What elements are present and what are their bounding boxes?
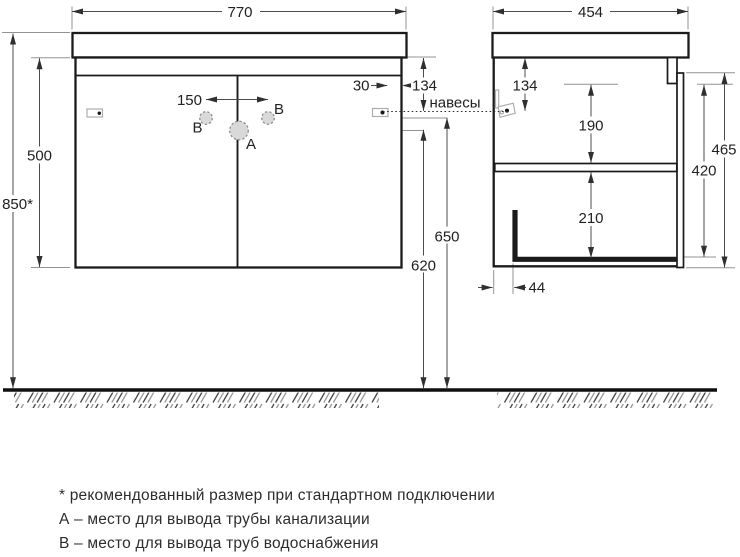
technical-drawing-svg: 770 454 850* 500 150 30 xyxy=(0,0,740,557)
dim-label-30: 30 xyxy=(353,78,370,95)
dim-label-500: 500 xyxy=(27,148,52,165)
dim-back-clearance-44: 44 xyxy=(478,280,545,297)
point-a-label: А xyxy=(246,136,256,153)
dim-label-770: 770 xyxy=(227,4,252,21)
dim-depth-454: 454 xyxy=(493,3,688,21)
side-top-rail xyxy=(668,58,678,84)
wall-hanger-left-icon xyxy=(87,109,103,117)
wall-hanger-right-icon xyxy=(373,109,389,117)
dim-lower-section-210: 210 xyxy=(575,172,607,258)
dim-total-height-850: 850* xyxy=(0,34,35,389)
dim-hanger-top-side-134: 134 xyxy=(509,58,541,111)
side-shelf xyxy=(495,164,677,172)
front-view xyxy=(73,33,407,268)
dim-overall-width-770: 770 xyxy=(72,3,406,21)
side-door-panel xyxy=(677,73,684,268)
footnotes: * рекомендованный размер при стандартном… xyxy=(59,484,495,556)
dim-cabinet-height-500: 500 xyxy=(22,58,57,267)
dim-label-190: 190 xyxy=(578,118,603,135)
dim-label-420: 420 xyxy=(691,163,716,180)
point-b-left-label: В xyxy=(192,120,202,137)
dim-label-134-front: 134 xyxy=(412,78,437,95)
point-b-right-label: В xyxy=(274,101,284,118)
dim-water-height-650: 650 xyxy=(431,118,463,388)
dim-label-44: 44 xyxy=(529,280,546,297)
dim-upper-section-190: 190 xyxy=(575,85,607,163)
dim-label-650: 650 xyxy=(434,229,459,246)
dim-label-850: 850* xyxy=(2,196,33,213)
water-point-b-right xyxy=(262,112,275,125)
dim-label-465: 465 xyxy=(711,142,736,159)
dim-label-134-side: 134 xyxy=(512,78,537,95)
floor xyxy=(3,390,717,408)
footnote-point-b: В – место для вывода труб водоснабжения xyxy=(59,532,495,556)
installation-drawing: 770 454 850* 500 150 30 xyxy=(0,0,740,557)
hangers-label: навесы xyxy=(430,95,481,112)
side-countertop xyxy=(493,33,689,58)
dim-drain-height-620: 620 xyxy=(408,130,440,388)
footnote-point-a: А – место для вывода трубы канализации xyxy=(59,508,495,532)
dim-label-620: 620 xyxy=(411,258,436,275)
floor-hatch-left xyxy=(14,393,379,409)
floor-hatch-right xyxy=(497,393,713,409)
dim-label-150: 150 xyxy=(177,92,202,109)
dim-body-height-420: 420 xyxy=(688,85,721,257)
dim-label-454: 454 xyxy=(578,4,603,21)
footnote-asterisk: * рекомендованный размер при стандартном… xyxy=(59,484,495,508)
front-countertop xyxy=(73,33,407,58)
dim-label-210: 210 xyxy=(578,210,603,227)
